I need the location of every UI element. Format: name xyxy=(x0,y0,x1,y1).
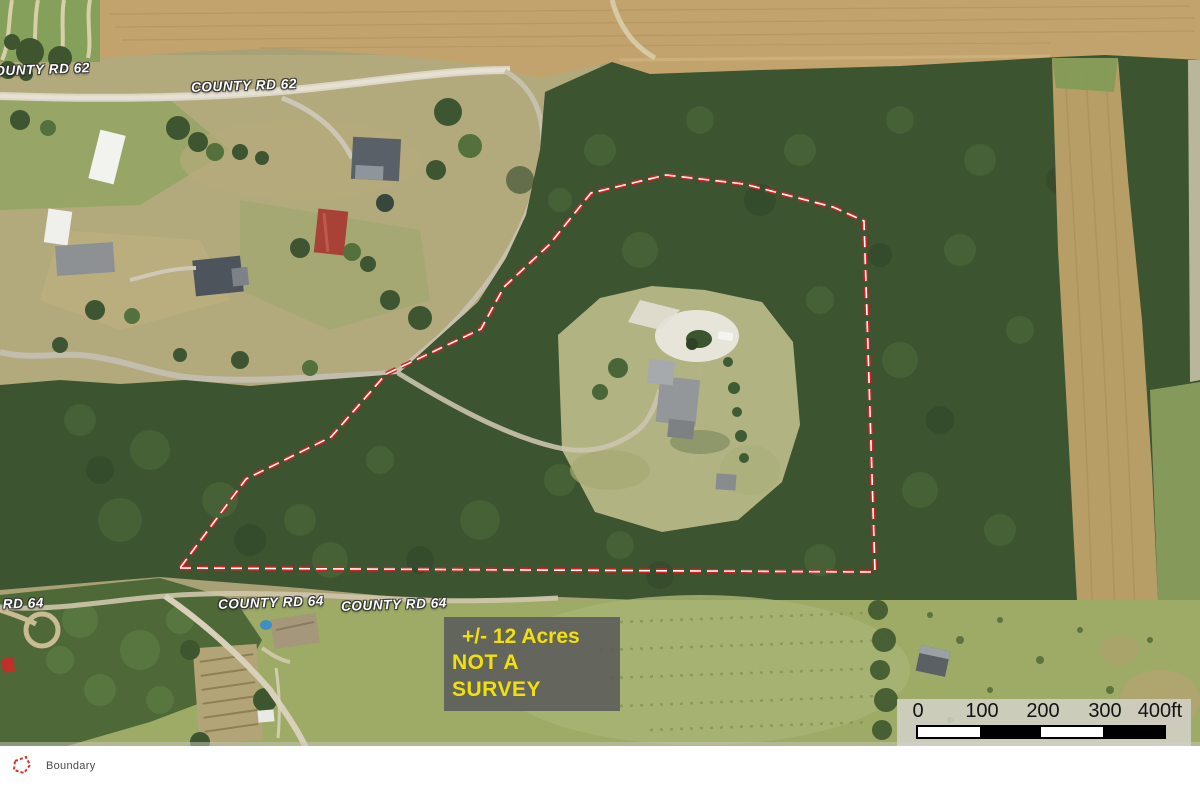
boundary-symbol-icon xyxy=(10,755,34,777)
pool xyxy=(260,620,272,630)
aerial-map: COUNTY RD 62 COUNTY RD 62 COUNTY RD 64 C… xyxy=(0,0,1200,746)
legend-label: Boundary xyxy=(46,760,96,772)
scale-bar-segments xyxy=(916,725,1166,739)
disclaimer-text: NOT A SURVEY xyxy=(452,650,612,703)
scale-tick-300: 300 xyxy=(1088,700,1121,723)
legend-footer: Boundary xyxy=(0,746,1200,803)
garden-patch xyxy=(193,644,264,744)
scale-tick-200: 200 xyxy=(1026,700,1059,723)
house-bottom-left xyxy=(270,613,320,649)
legend-item-boundary: Boundary xyxy=(10,755,96,777)
map-screenshot: COUNTY RD 62 COUNTY RD 62 COUNTY RD 64 C… xyxy=(0,0,1200,803)
scale-tick-400: 400ft xyxy=(1138,700,1182,723)
acreage-text: +/- 12 Acres xyxy=(452,623,612,650)
scale-tick-100: 100 xyxy=(965,700,998,723)
red-barn xyxy=(314,209,348,256)
scale-bar: 0 100 200 300 400ft xyxy=(897,699,1191,746)
shed xyxy=(715,473,736,490)
acreage-annotation: +/- 12 Acres NOT A SURVEY xyxy=(444,617,620,711)
scale-tick-0: 0 xyxy=(912,700,923,723)
